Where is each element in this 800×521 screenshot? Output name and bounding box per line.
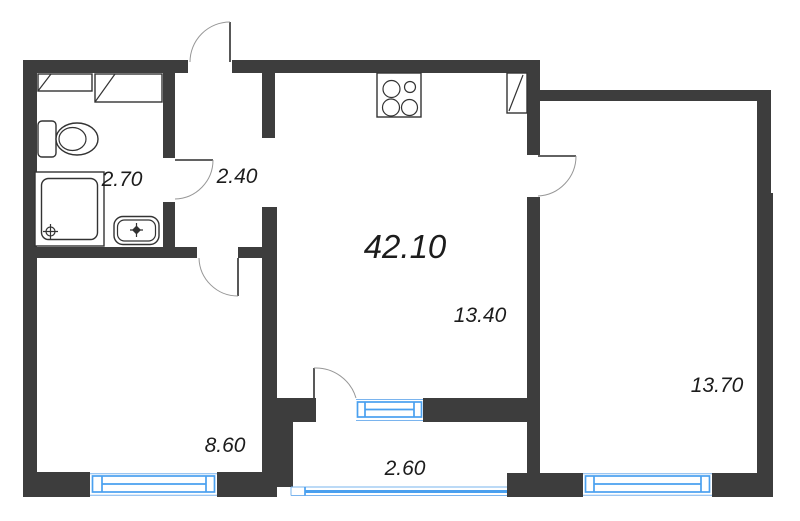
wall-kitchen-stub xyxy=(262,73,275,138)
room-label-bedroom: 13.70 xyxy=(691,374,744,397)
balcony-door xyxy=(314,368,356,398)
bathroom-door xyxy=(175,160,213,199)
label-layer: 42.10 2.70 2.40 13.40 8.60 13.70 2.60 xyxy=(101,165,744,480)
wall-bedroom-left-lower xyxy=(527,197,540,473)
floor-plan: 42.10 2.70 2.40 13.40 8.60 13.70 2.60 xyxy=(0,0,800,521)
wall-balcony-jamb xyxy=(277,398,316,422)
wall-bathroom-right-upper xyxy=(163,73,175,158)
cabinet-icon xyxy=(38,74,162,102)
bathroom-door-arc xyxy=(175,160,213,199)
stove-icon xyxy=(377,73,421,117)
sink-icon xyxy=(114,217,159,245)
room-small-door-arc xyxy=(199,258,238,296)
wall-bedroom-top xyxy=(538,90,770,101)
wall-bedroom-bottom-left xyxy=(507,473,583,497)
toilet-icon xyxy=(38,121,98,157)
window-bedroom xyxy=(583,474,712,495)
total-area-label: 42.10 xyxy=(364,228,447,265)
wall-mid-vertical xyxy=(262,207,277,497)
wall-top-left xyxy=(23,60,188,73)
window-room-small xyxy=(90,474,217,495)
wall-left-outer xyxy=(23,60,37,497)
shower-icon xyxy=(35,172,104,246)
bedroom-door xyxy=(538,156,576,196)
fixture-layer xyxy=(35,73,527,246)
wall-right-outer-upper xyxy=(757,90,771,193)
window-layer xyxy=(90,400,712,496)
wall-bottom-left-a xyxy=(23,472,90,497)
wall-bathroom-right-lower xyxy=(163,202,175,247)
wall-right-outer-lower xyxy=(757,193,773,497)
room-label-room-small: 8.60 xyxy=(205,434,246,457)
wall-balcony-top-right xyxy=(423,398,538,422)
bedroom-door-arc xyxy=(538,156,576,196)
wall-bedroom-left-upper xyxy=(527,60,540,155)
balcony-door-arc xyxy=(314,368,356,398)
entrance-door-arc xyxy=(190,22,230,62)
wall-bottom-left-b xyxy=(217,472,277,497)
wall-balcony-left xyxy=(277,422,293,487)
room-label-balcony: 2.60 xyxy=(384,457,426,480)
entrance-door xyxy=(190,22,230,62)
vent-icon xyxy=(507,73,527,113)
wall-bedroom-bottom-right xyxy=(712,473,770,497)
room-label-kitchen-living: 13.40 xyxy=(454,304,507,327)
wall-top-right xyxy=(232,60,540,73)
room-label-hallway: 2.40 xyxy=(216,165,258,188)
window-balcony-top xyxy=(356,400,423,421)
wall-bathroom-bottom xyxy=(23,247,197,258)
room-label-bathroom: 2.70 xyxy=(101,168,143,191)
balcony-glazing xyxy=(291,487,507,496)
wall-layer xyxy=(23,60,773,497)
floor-plan-canvas: 42.10 2.70 2.40 13.40 8.60 13.70 2.60 xyxy=(0,0,800,521)
room-small-door xyxy=(199,258,238,296)
